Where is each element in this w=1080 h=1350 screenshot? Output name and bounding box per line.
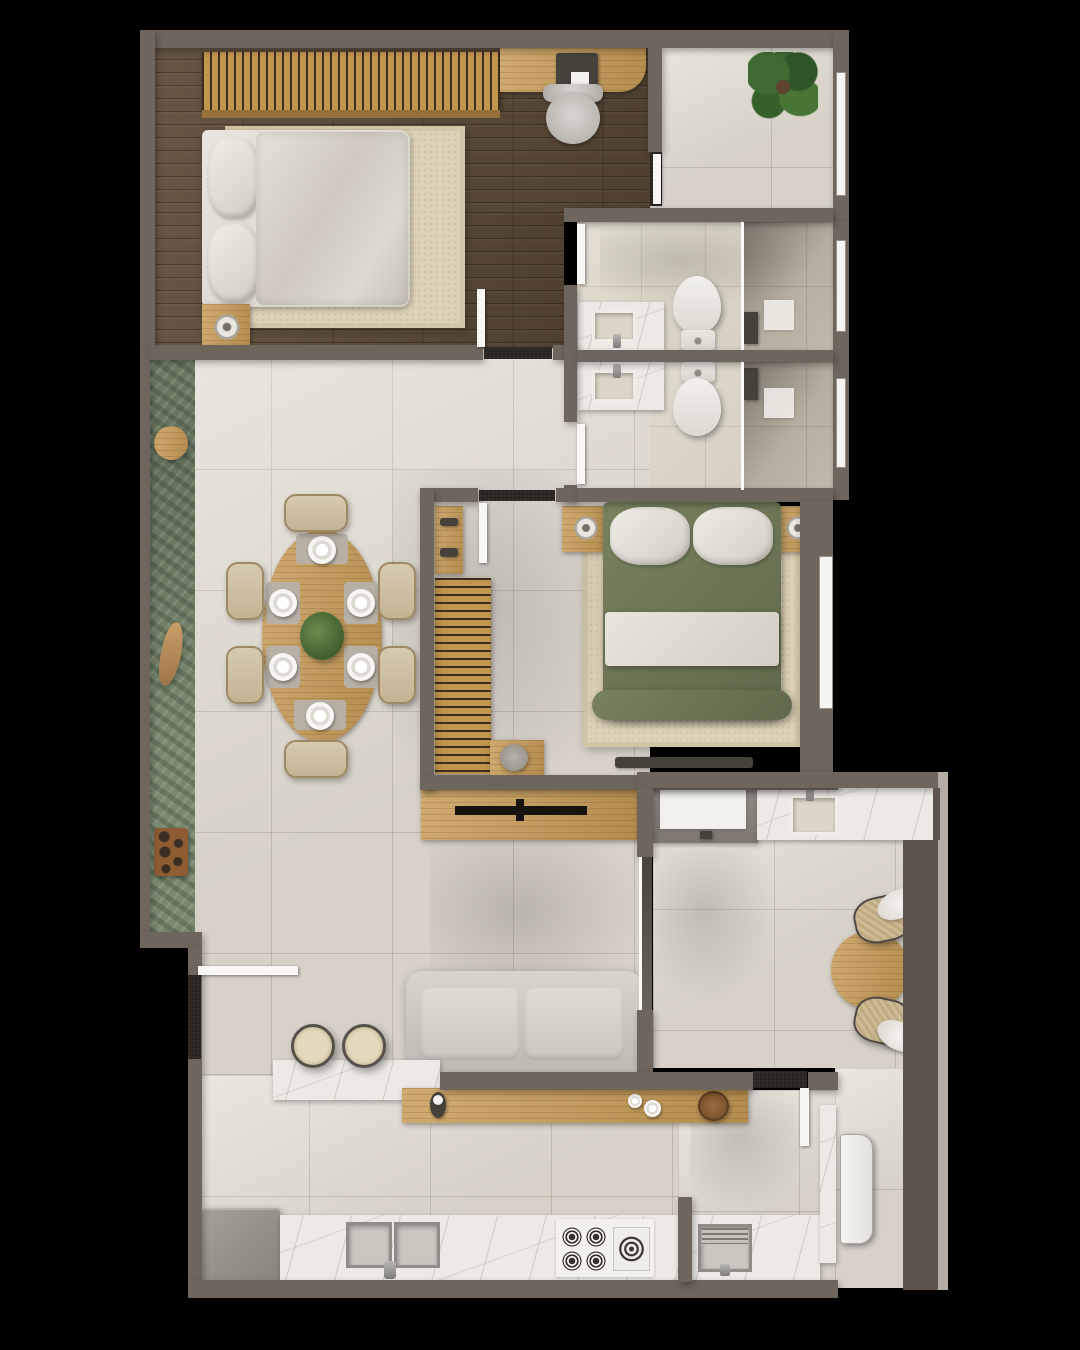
wall-bath-divider [577,350,833,362]
corridor-outer-frame [938,772,948,1290]
plate-sw [269,653,297,681]
dining-chair-ne [378,562,416,620]
dining-centerpiece-plant [300,612,344,660]
wall-bedroom1-east [648,46,662,152]
grill-glass [660,789,746,829]
console-lamp-top [433,1095,443,1105]
balcony-sink [790,795,838,835]
bathroom1-faucet [613,334,621,348]
bedroom1-wardrobe [202,52,500,110]
door-bedroom1-east [653,154,661,204]
wall-bedroom2-west [420,488,434,790]
wall-bedroom2-south-block [577,488,833,502]
bedroom1-pillow-a [208,138,260,218]
burner-1 [562,1227,582,1247]
bathroom2-faucet [613,364,621,378]
bedroom2-pillow-right [693,507,773,565]
console-basket [698,1091,729,1121]
bar-stool-2 [342,1024,386,1068]
window-bathroom1 [836,240,846,332]
bedroom2-pillow-left [610,507,690,565]
bedroom2-wardrobe [435,578,491,774]
balcony-sliding-door-glass [639,857,642,1010]
floor-plan [0,0,1080,1350]
burner-4 [586,1251,606,1271]
plate-north [308,536,336,564]
door-bedroom1-south [477,289,485,347]
sofa-cushion-right [524,988,624,1060]
bathroom1-toilet-tank [681,330,715,350]
laundry-tank-ribs [702,1228,748,1244]
wall-balcony-west-b [637,1010,653,1072]
wall-balcony-top [637,772,940,788]
tv-console [421,790,638,840]
bedroom2-shoe-shelf [435,506,463,574]
bathroom2-shower-column [744,368,758,400]
wall-living-south [440,1072,753,1090]
bedroom1-lamp [214,314,240,340]
doormat-bedroom2 [479,490,555,501]
burner-2 [586,1227,606,1247]
entry-plant [748,52,818,122]
wall-bathblock-top [564,208,833,222]
door-bedroom2 [479,503,487,563]
sofa-cushion-left [420,988,520,1060]
dining-chair-se [378,646,416,704]
console-cup-1 [628,1094,642,1108]
doormat-service-entry [753,1071,807,1088]
plate-nw [269,589,297,617]
bathroom1-shower-column [744,312,758,344]
dining-chair-sw [226,646,264,704]
dining-chair-north [284,494,348,532]
office-chair-seat [546,92,600,144]
door-bathroom1 [577,224,585,284]
wall-bottom [188,1280,838,1298]
garden-glass-door [198,966,298,975]
wall-bath-west-a [564,285,577,422]
cooktop-ring-module [613,1227,650,1271]
kitchen-faucet [384,1261,396,1279]
laundry-faucet [720,1264,730,1276]
blackout-left [140,948,188,1290]
dining-chair-south [284,740,348,778]
doormat-garden-door [188,975,201,1059]
window-entry-east [836,72,846,196]
kitchen-sink-right [394,1222,440,1268]
service-marble-wall [820,1105,836,1263]
burner-3 [562,1251,582,1271]
garden-wood-plaque [154,426,188,460]
doormat-bedroom1-south [484,347,552,359]
window-bedroom2 [819,556,833,709]
bathroom1-shower-tray [764,300,794,330]
wall-balcony-west-a [637,788,653,857]
bedroom1-duvet [256,132,408,305]
wall-service-west [678,1197,692,1282]
shower2-glass [741,362,744,490]
bedroom1-wardrobe-rail [202,110,500,118]
plate-ne [347,589,375,617]
wall-bedroom1-south-a [150,345,483,360]
door-service-entry [800,1088,809,1146]
plate-se [347,653,375,681]
bedroom1-pillow-b [208,224,260,302]
bathroom1-toilet-bowl [673,276,721,334]
wall-left-jog [140,932,202,948]
grill-knob [700,831,712,839]
bedroom2-footroll [592,690,792,720]
bar-stool-1 [291,1024,335,1068]
wall-living-south-b [808,1072,838,1090]
garden-hook-panel [154,828,188,876]
shadow-balcony [655,850,775,1000]
bedroom2-blanket [605,612,779,666]
wall-left-mid [140,350,150,948]
dining-chair-nw [226,562,264,620]
balcony-faucet [806,789,814,801]
refrigerator [202,1208,280,1282]
plate-south [306,702,334,730]
balcony-counter [757,788,933,840]
wall-top [140,30,848,48]
window-bathroom2 [836,378,846,468]
bedroom2-lamp-left [574,516,598,540]
corridor-wall-band [903,840,940,1290]
bedroom2-bench [615,757,753,768]
balcony-ne-fill [933,788,940,840]
door-bathroom2 [577,424,585,484]
entry-console [402,1088,748,1123]
shower1-glass [741,222,744,350]
shoe-pair-2 [440,548,458,557]
wall-bedroom2-top-b [556,488,577,502]
water-heater [840,1134,873,1244]
bedroom2-basket [500,744,528,771]
wall-left-upper [140,30,155,350]
shoe-pair-1 [440,518,458,526]
bedroom1-paper [571,72,589,84]
bathroom2-toilet-bowl [673,378,721,436]
tv-stand [516,799,524,821]
console-cup-2 [644,1100,661,1117]
bathroom2-shower-tray [764,388,794,418]
